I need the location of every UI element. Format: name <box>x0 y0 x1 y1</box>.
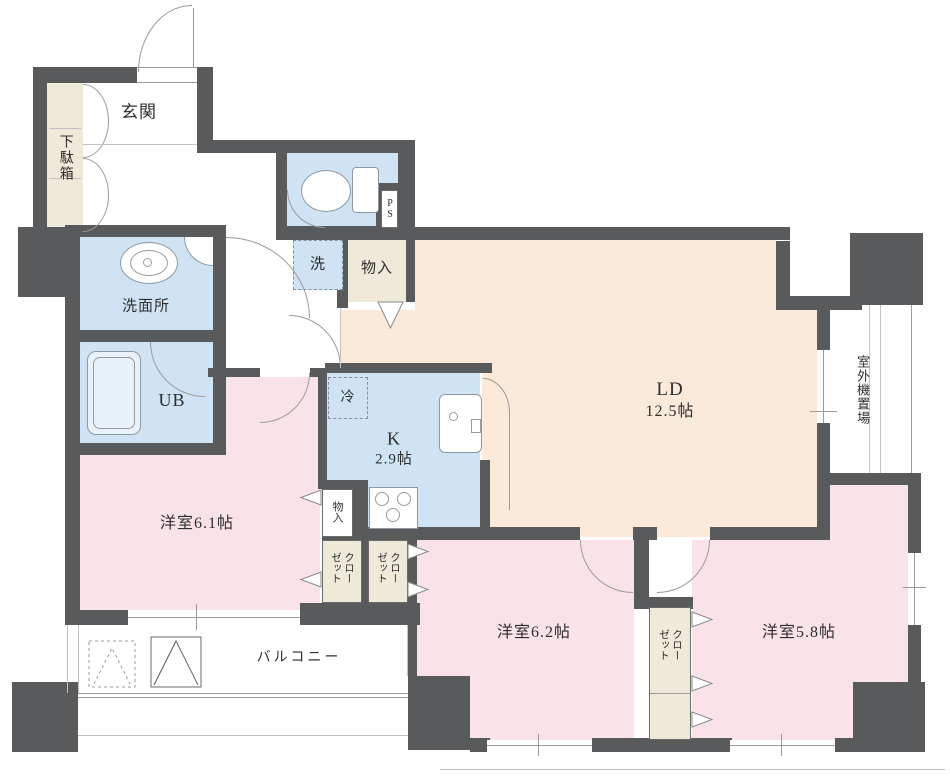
ac-future-space-symbol <box>88 640 136 688</box>
burner-icon <box>386 508 400 522</box>
genkan-step-line <box>83 144 197 145</box>
wall <box>592 738 732 752</box>
wall <box>276 153 287 229</box>
balcony-side-line <box>67 625 68 693</box>
kitchen-counter-handle <box>471 419 481 433</box>
wall <box>65 443 226 455</box>
wall <box>318 373 327 489</box>
burner-icon <box>375 492 389 506</box>
closet-c-box <box>649 607 691 740</box>
folding-door-chevron-right <box>407 543 431 560</box>
pillar <box>18 227 78 297</box>
bedroom-58-nook <box>830 485 908 540</box>
fridge-label: 冷 <box>341 389 356 407</box>
bedroom-storage-label: 物入 <box>331 501 343 523</box>
closet-a-label: クローゼット <box>329 552 355 590</box>
bathtub-inner <box>93 357 135 429</box>
kitchen-faucet-icon <box>449 412 458 421</box>
wall <box>208 368 260 377</box>
folding-door-chevron-right <box>691 711 714 728</box>
wall <box>710 527 830 540</box>
window-line <box>487 745 592 746</box>
wall <box>320 480 355 489</box>
ld-size: 12.5帖 <box>645 403 694 420</box>
window <box>487 740 592 752</box>
wall <box>33 67 137 83</box>
cabinet-door-arc <box>83 158 109 195</box>
washroom-label: 洗面所 <box>122 298 170 317</box>
balcony-label: バルコニー <box>257 649 342 667</box>
pillar <box>12 682 78 752</box>
kitchen-size: 2.9帖 <box>375 451 413 467</box>
folding-door-chevron-right <box>407 581 431 598</box>
washer-label: 洗 <box>310 256 326 275</box>
hall-ld-boundary <box>340 308 341 368</box>
wall <box>197 140 415 153</box>
entrance-door-leaf <box>193 8 194 68</box>
hall-storage-label: 物入 <box>361 260 393 279</box>
balcony-edge <box>78 693 408 694</box>
outdoor-area-boundary <box>911 305 912 473</box>
floor-plan: 玄関 下駄箱 PS 洗 物入 洗面所 UB 冷 K 2.9帖 LD 12.5帖 … <box>0 0 950 783</box>
toilet-tank-icon <box>352 167 379 213</box>
balcony-side-line <box>407 625 408 676</box>
pillar <box>850 233 923 305</box>
balcony-outer-edge <box>78 735 408 736</box>
wall <box>817 473 921 485</box>
pillar <box>853 682 925 752</box>
outdoor-area-rail <box>880 305 881 473</box>
window-line <box>914 553 915 625</box>
ld-name: LD <box>656 379 683 400</box>
cabinet-door-arc <box>83 84 109 121</box>
entrance-door-arc <box>138 5 192 72</box>
wall <box>776 241 790 303</box>
storage-door-chevron-down <box>377 301 404 330</box>
window-tick <box>196 604 197 630</box>
bedroom-61-label: 洋室6.1帖 <box>160 514 234 534</box>
cabinet-door-arc <box>83 121 109 158</box>
window-tick <box>781 734 782 756</box>
living-dining-label: LD 12.5帖 <box>645 378 694 422</box>
wall <box>213 237 226 332</box>
closet-c-label: クローゼット <box>657 629 683 667</box>
toilet-bowl-icon <box>301 170 351 212</box>
bedroom-58-label: 洋室5.8帖 <box>762 623 836 643</box>
wall <box>398 227 790 240</box>
wall <box>213 342 226 445</box>
window-line <box>730 745 835 746</box>
balcony-side-line <box>78 625 79 693</box>
window-line <box>823 350 824 423</box>
shoe-cabinet-label: 下駄箱 <box>57 134 72 182</box>
folding-door-chevron-left <box>298 571 322 588</box>
ps-label: PS <box>385 198 396 220</box>
folding-door-chevron-left <box>298 489 322 506</box>
living-dining-room <box>415 240 776 310</box>
kitchen-name: K <box>387 428 401 448</box>
wall <box>65 610 128 625</box>
burner-icon <box>397 492 411 506</box>
closet-b-label: クローゼット <box>375 552 401 590</box>
ac-unit-symbol <box>150 636 202 688</box>
site-line <box>440 769 945 770</box>
faucet-icon <box>143 258 152 267</box>
wall <box>480 460 490 537</box>
wall <box>835 738 855 752</box>
window-tick <box>903 587 926 588</box>
unit-bath-label: UB <box>158 389 185 412</box>
genkan-label: 玄関 <box>121 101 157 122</box>
ld-door-leaf <box>509 413 510 510</box>
balcony-edge <box>78 697 408 698</box>
closet-c-shelf-line <box>650 693 690 694</box>
pillar <box>408 676 470 750</box>
hall-door-arc <box>289 315 341 368</box>
window-tick <box>810 411 837 412</box>
bedroom-62-label: 洋室6.2帖 <box>497 623 571 643</box>
wall <box>78 330 226 342</box>
wall <box>406 240 415 302</box>
window <box>730 740 835 752</box>
outdoor-unit-label: 室外機置場 <box>855 355 869 425</box>
wall <box>300 603 420 625</box>
wall <box>325 363 492 373</box>
kitchen-label: K 2.9帖 <box>375 427 413 469</box>
wall <box>33 67 47 233</box>
window-tick <box>538 734 539 756</box>
folding-door-chevron-right <box>691 611 714 628</box>
cabinet-shelf-line <box>49 128 81 129</box>
window-line <box>128 617 300 618</box>
folding-door-chevron-right <box>691 675 714 692</box>
